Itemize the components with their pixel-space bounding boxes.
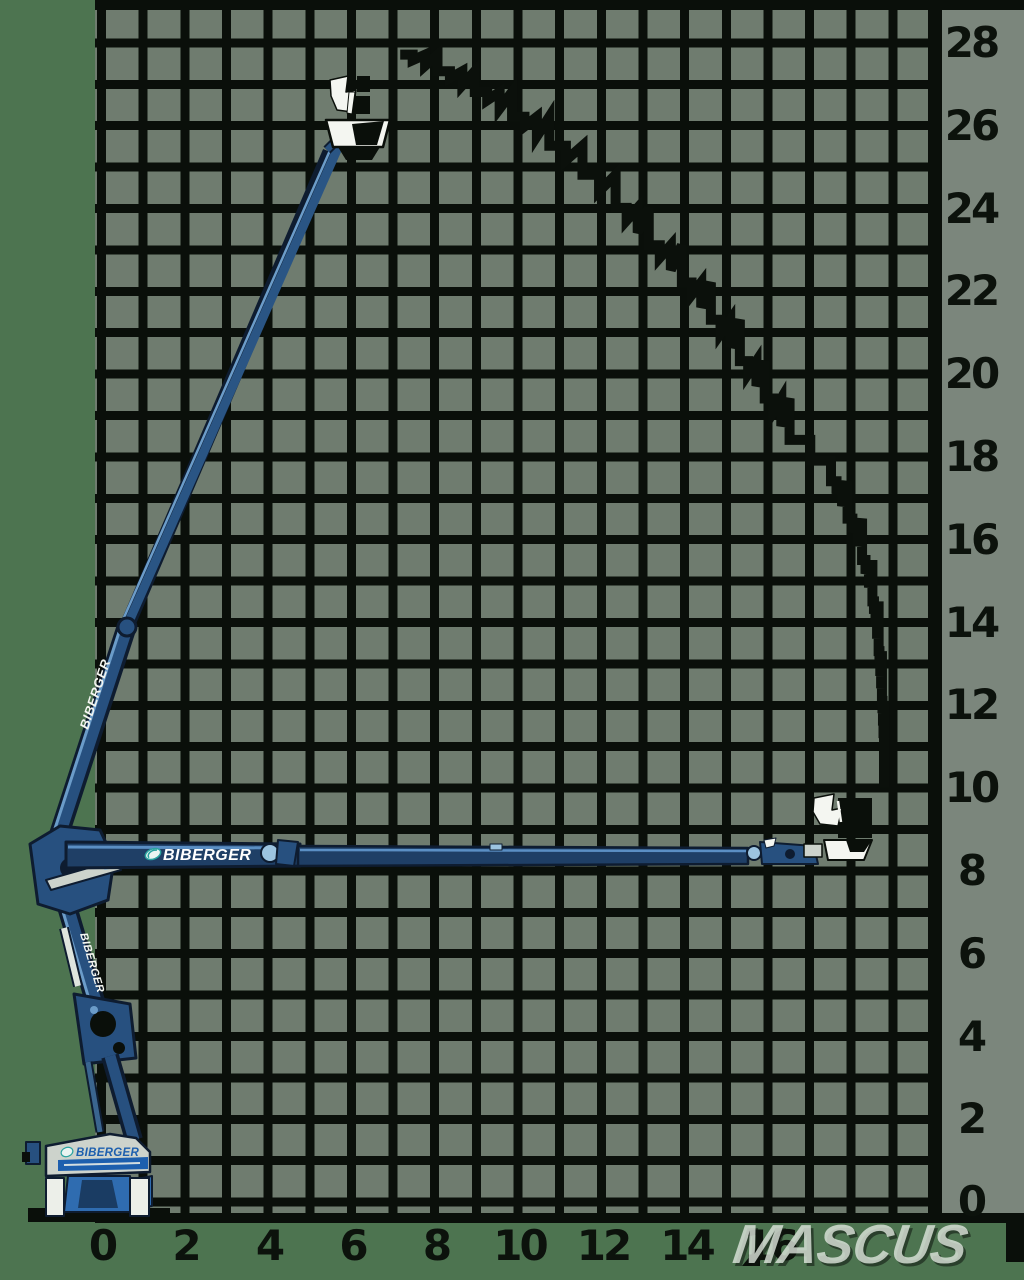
- brand-on-chassis: BIBERGER: [76, 1147, 139, 1159]
- mascus-logo-text: MASCUS: [730, 1212, 971, 1276]
- machine-and-envelope: BIBERGER BIBERGER: [0, 0, 1024, 1280]
- turret: [30, 826, 146, 914]
- working-envelope-curve: [400, 55, 884, 788]
- horizontal-boom: BIBERGER: [66, 838, 818, 868]
- raised-boom: BIBERGER: [47, 130, 344, 856]
- brand-on-boom: BIBERGER: [163, 847, 251, 864]
- boom-lift-illustration: BIBERGER BIBERGER: [22, 76, 872, 1222]
- reach-diagram: 2826242220181614121086420 0246810121416 …: [0, 0, 1024, 1280]
- watermark-fragment: [1006, 1214, 1024, 1262]
- mascus-watermark: MASCUS: [728, 1210, 1024, 1280]
- lower-basket: [804, 794, 872, 860]
- upper-basket: [326, 76, 390, 160]
- chassis: BIBERGER: [22, 1134, 170, 1222]
